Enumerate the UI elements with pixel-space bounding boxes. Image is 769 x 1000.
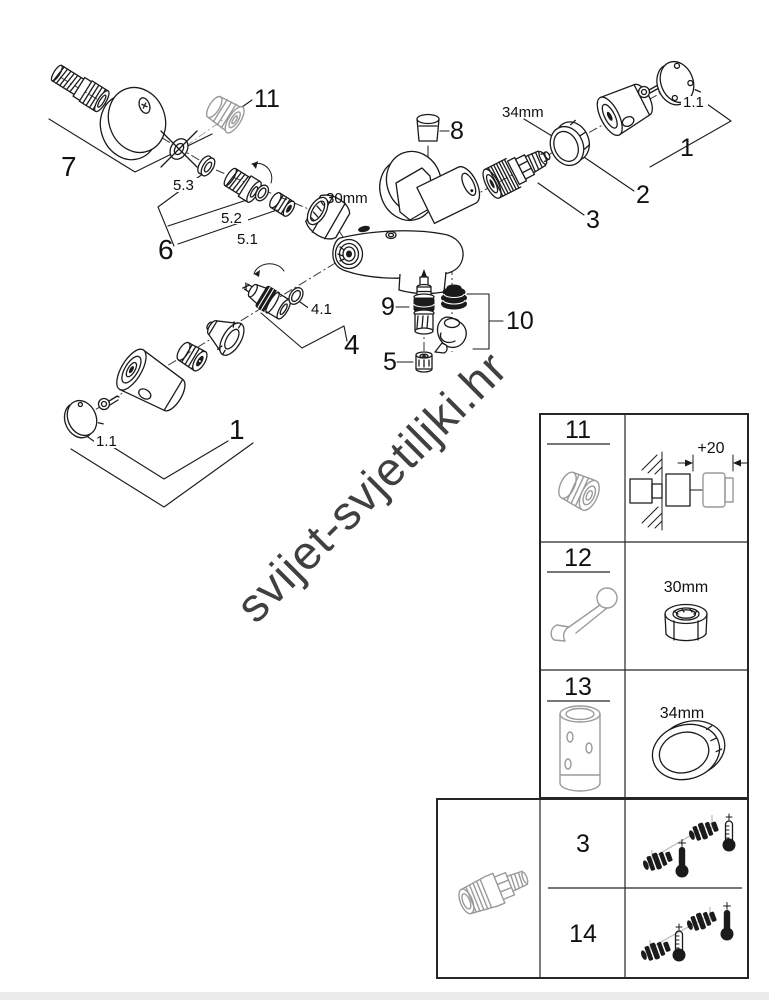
variant-num-3: 3 <box>576 830 590 858</box>
dim-30mm: 30mm <box>326 190 368 207</box>
callout-10: 10 <box>506 307 534 335</box>
variant-num-14: 14 <box>569 920 597 948</box>
callout-2: 2 <box>636 181 650 209</box>
parts-diagram-page: svijet-svjetiljki.hr <box>0 0 769 1000</box>
callout-1-top: 1 <box>680 134 694 162</box>
callout-5-3: 5.3 <box>173 177 194 194</box>
callout-5-1: 5.1 <box>237 231 258 248</box>
callout-4: 4 <box>344 329 360 360</box>
table-num-12: 12 <box>564 544 592 572</box>
callout-4-1: 4.1 <box>311 301 332 318</box>
table-num-11: 11 <box>565 416 591 444</box>
callout-7: 7 <box>61 151 77 182</box>
callout-9: 9 <box>381 293 395 321</box>
callout-1-1-top: 1.1 <box>683 94 704 111</box>
diagram-canvas: svijet-svjetiljki.hr <box>0 0 769 1000</box>
part-grub-5 <box>416 352 432 372</box>
callout-3: 3 <box>586 206 600 234</box>
callout-8: 8 <box>450 117 464 145</box>
footer-bar <box>0 992 769 1000</box>
callout-11: 11 <box>254 85 280 113</box>
callout-1-1-bottom: 1.1 <box>96 433 117 450</box>
callout-1-bottom: 1 <box>229 414 245 445</box>
table-num-13: 13 <box>564 673 592 701</box>
part-plug-8 <box>417 115 439 142</box>
callout-6: 6 <box>158 234 174 265</box>
dim-34mm: 34mm <box>502 104 544 121</box>
dim-34mm-table: 34mm <box>660 705 704 722</box>
dim-30mm-table: 30mm <box>664 579 708 596</box>
callout-5-2: 5.2 <box>221 210 242 227</box>
dim-plus20: +20 <box>697 440 724 457</box>
callout-5: 5 <box>383 348 397 376</box>
